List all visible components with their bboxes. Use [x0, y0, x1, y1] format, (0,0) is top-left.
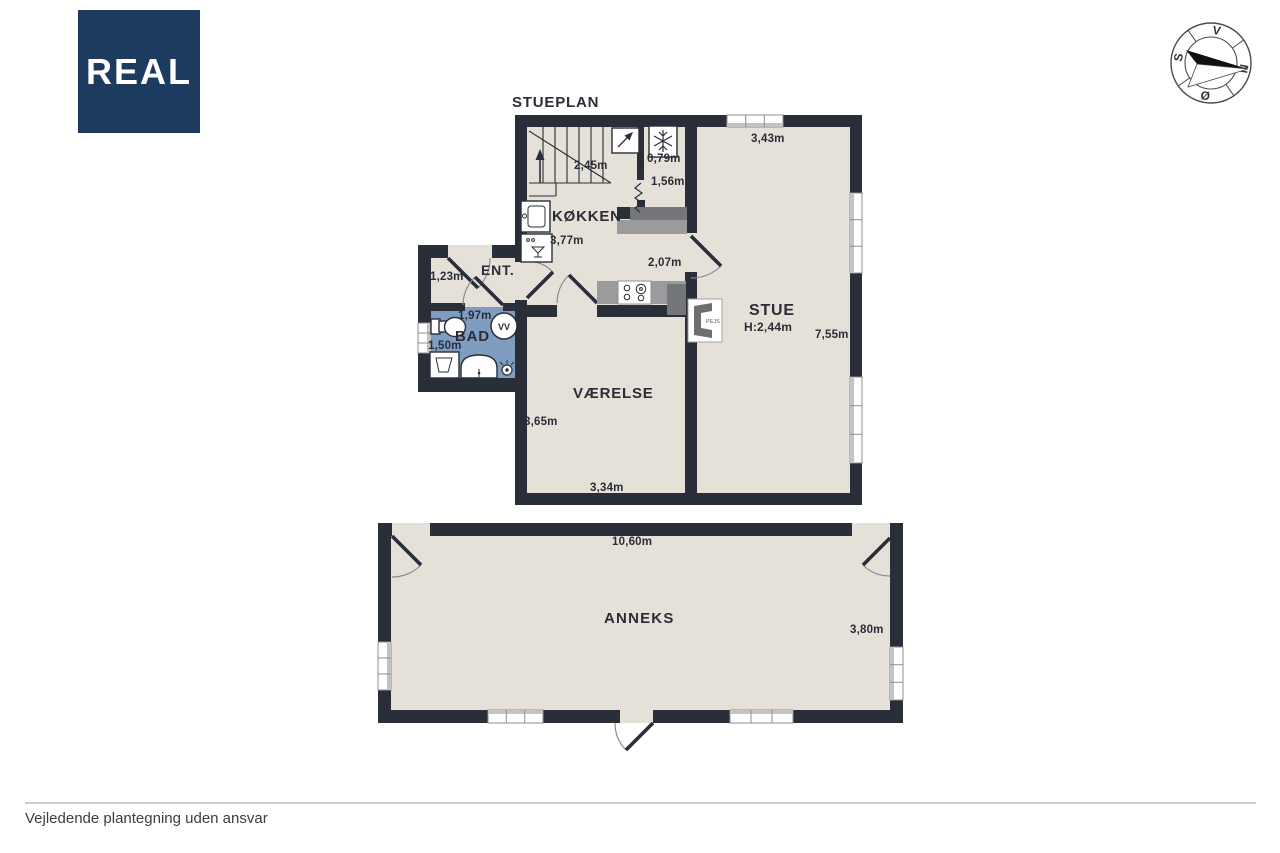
measurement-label: 0,79m — [647, 153, 681, 166]
wall-segment — [793, 710, 903, 723]
measurement-label: 1,56m — [651, 176, 685, 189]
room-label-vaerelse: VÆRELSE — [573, 386, 654, 403]
window — [727, 115, 783, 127]
dishwasher-icon — [521, 234, 552, 262]
anneks-door-gap-2 — [852, 523, 890, 536]
measurement-label: 10,60m — [612, 536, 652, 549]
fireplace-label: PEJS — [706, 319, 720, 325]
wall-segment — [890, 523, 903, 647]
measurement-label: 2,45m — [574, 160, 608, 173]
wall-segment — [543, 710, 620, 723]
window — [850, 377, 862, 463]
anneks-door-gap-1 — [392, 523, 430, 536]
window — [488, 710, 543, 723]
counter-dark — [630, 207, 687, 220]
wall-segment — [850, 273, 862, 377]
wall-segment — [850, 115, 862, 193]
kitchen-sink-icon — [521, 201, 550, 232]
measurement-label: 3,43m — [751, 133, 785, 146]
measurement-label: 1,23m — [430, 271, 464, 284]
room-label-ent: ENT. — [481, 263, 515, 278]
measurement-label: 3,77m — [550, 235, 584, 248]
plan-title: STUEPLAN — [512, 95, 599, 112]
footer-disclaimer: Vejledende plantegning uden ansvar — [25, 810, 268, 827]
measurement-label: 1,50m — [428, 340, 462, 353]
electrical-panel-icon — [612, 128, 639, 153]
room-label-koekken: KØKKEN — [552, 209, 622, 226]
floor-plan-page: REAL — [0, 0, 1280, 853]
window — [730, 710, 793, 723]
measurement-label: 3,80m — [850, 624, 884, 637]
wall-segment — [503, 303, 527, 311]
measurement-label: 1,97m — [458, 310, 492, 323]
counter-dark — [667, 284, 686, 315]
water-heater-label: VV — [498, 322, 510, 332]
floor-plan-drawing: PEJS VV — [0, 0, 1280, 853]
bath-sink-icon — [430, 352, 459, 378]
room-label-stue: STUE — [749, 302, 795, 320]
door-anneks-bottom — [615, 723, 653, 750]
measurement-label: 7,55m — [815, 329, 849, 342]
window — [850, 193, 862, 273]
measurement-label: 3,34m — [590, 482, 624, 495]
wall-segment — [653, 710, 730, 723]
wall-segment — [430, 523, 852, 536]
wall-segment — [418, 378, 527, 392]
counter — [617, 220, 687, 234]
wall-segment — [378, 710, 488, 723]
front-door-gap — [448, 245, 492, 258]
shower-icon — [461, 355, 497, 378]
measurement-label: H:2,44m — [744, 321, 792, 334]
wall-segment — [418, 245, 431, 323]
water-heater-icon: VV — [491, 313, 517, 339]
compass-icon: N Ø S V — [1171, 23, 1251, 103]
window — [890, 647, 903, 700]
wall-segment — [527, 305, 557, 317]
room-label-anneks: ANNEKS — [604, 611, 675, 628]
footer-divider — [25, 802, 1256, 804]
measurement-label: 2,07m — [648, 257, 682, 270]
wall-segment — [378, 523, 391, 642]
fireplace-icon: PEJS — [688, 299, 722, 342]
window — [378, 642, 391, 690]
measurement-label: 3,65m — [524, 416, 558, 429]
anneks-door-gap-3 — [620, 710, 653, 723]
stove-icon — [618, 281, 651, 304]
wall-segment — [515, 493, 862, 505]
